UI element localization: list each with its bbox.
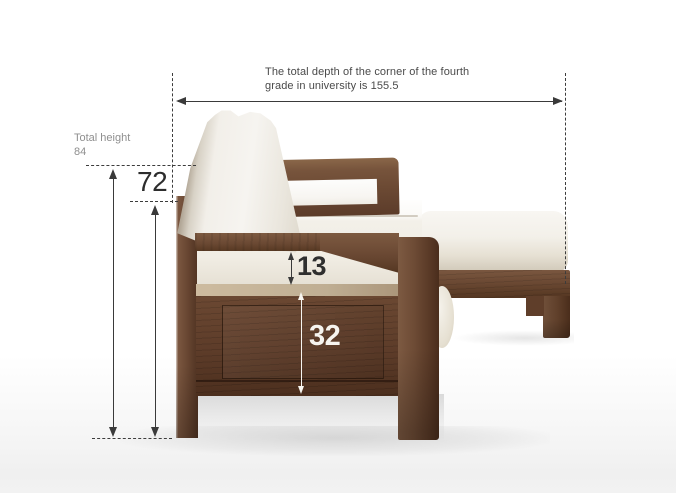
total-height-value: 84	[74, 146, 130, 160]
arrowhead-right-icon	[553, 97, 563, 105]
dim-label-total-depth-line1: The total depth of the corner of the fou…	[265, 65, 469, 79]
dim-label-total-depth-line2: grade in university is 155.5	[265, 79, 469, 93]
dim-dash-floor	[92, 438, 172, 439]
dim-line-total-depth	[178, 101, 562, 102]
arrowhead-left-icon	[176, 97, 186, 105]
dim-arrow-total-height	[109, 169, 118, 437]
dim-arrow-cushion-thickness	[288, 252, 295, 285]
ottoman-cushion	[418, 211, 568, 273]
sofa-front-leg	[398, 237, 439, 440]
ottoman-leg	[543, 296, 570, 338]
extension-line-right	[565, 73, 566, 284]
sofa-back-cushion	[176, 106, 306, 254]
dim-label-cushion-thickness: 13	[297, 252, 326, 280]
ottoman-rail	[432, 270, 570, 298]
dim-dash-backrest-height	[130, 201, 178, 202]
dim-label-total-height: Total height 84	[74, 132, 130, 159]
dim-arrow-backrest-height	[151, 205, 160, 437]
dim-label-total-depth: The total depth of the corner of the fou…	[265, 65, 469, 93]
dim-label-backrest-height: 72	[137, 168, 167, 196]
product-dimension-diagram: The total depth of the corner of the fou…	[0, 0, 676, 493]
ottoman-leg-step	[526, 296, 544, 316]
dim-label-base-height: 32	[309, 321, 340, 351]
total-height-text: Total height	[74, 132, 130, 146]
extension-line-left	[172, 73, 173, 203]
dim-arrow-base-height	[298, 292, 305, 394]
